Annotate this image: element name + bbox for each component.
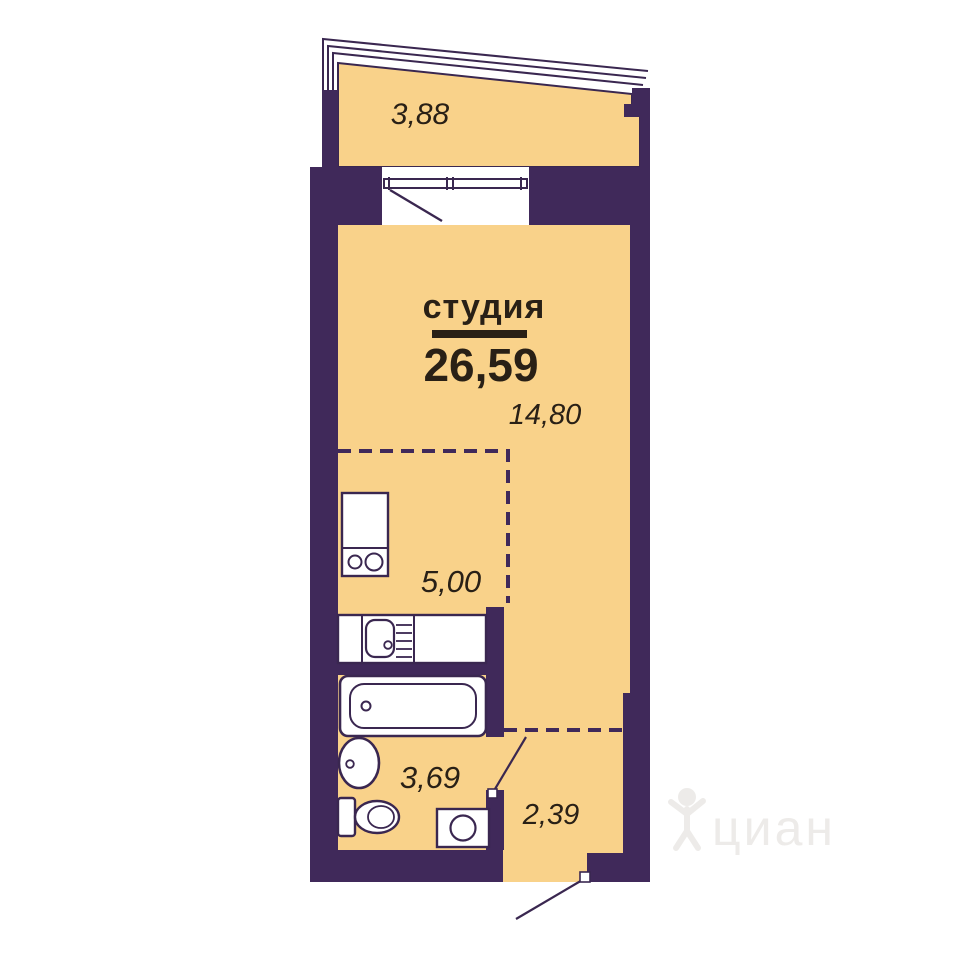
balcony-floor: [338, 63, 640, 167]
entry-opening-floor: [503, 848, 587, 882]
window-recess: [382, 167, 529, 225]
balcony-window: [382, 167, 529, 225]
title-underline: [432, 330, 527, 338]
bathroom-door-jamb: [488, 789, 497, 798]
sink-faucet: [384, 641, 392, 649]
watermark-text: циан: [712, 800, 836, 856]
entry-door-swing: [516, 879, 584, 919]
washing-machine-door: [451, 816, 476, 841]
balcony-left-wall: [322, 90, 338, 168]
kitchen-counter: [342, 493, 388, 576]
stove-burner-large: [366, 554, 383, 571]
washbasin-faucet: [346, 760, 354, 768]
watermark-person-body: [671, 801, 703, 848]
kitchen-area-label: 5,00: [421, 564, 481, 599]
top-wall-left-segment: [338, 167, 382, 225]
washing-machine: [437, 809, 489, 847]
bathtub: [340, 676, 486, 736]
bathroom-wall-upper: [486, 607, 504, 737]
bathroom-area-label: 3,69: [400, 760, 460, 795]
floorplan-canvas: 3,88 студия 26,59 14,80 5,00 3,69 2,39 ц…: [0, 0, 960, 960]
watermark: циан: [671, 788, 836, 856]
window-sill: [384, 179, 527, 188]
plan-title: студия: [423, 288, 546, 326]
toilet-tank: [338, 798, 355, 836]
stove-burner-small: [349, 556, 362, 569]
kitchen-sink-counter: [338, 615, 486, 663]
hallway-area-label: 2,39: [522, 799, 579, 831]
left-wall: [310, 167, 338, 882]
washbasin-bowl: [339, 738, 379, 788]
watermark-person-icon: [678, 788, 696, 806]
toilet: [338, 798, 399, 836]
sink-counter-body: [338, 615, 486, 663]
washbasin: [339, 738, 379, 788]
sink-basin: [366, 620, 394, 657]
living-area-label: 14,80: [509, 399, 582, 431]
bottom-wall-left: [310, 850, 503, 882]
floorplan-drawing: 3,88 студия 26,59 14,80 5,00 3,69 2,39 ц…: [0, 0, 960, 960]
total-area-label: 26,59: [423, 339, 538, 391]
entry-door-jamb: [580, 872, 590, 882]
balcony-area-label: 3,88: [391, 98, 450, 131]
